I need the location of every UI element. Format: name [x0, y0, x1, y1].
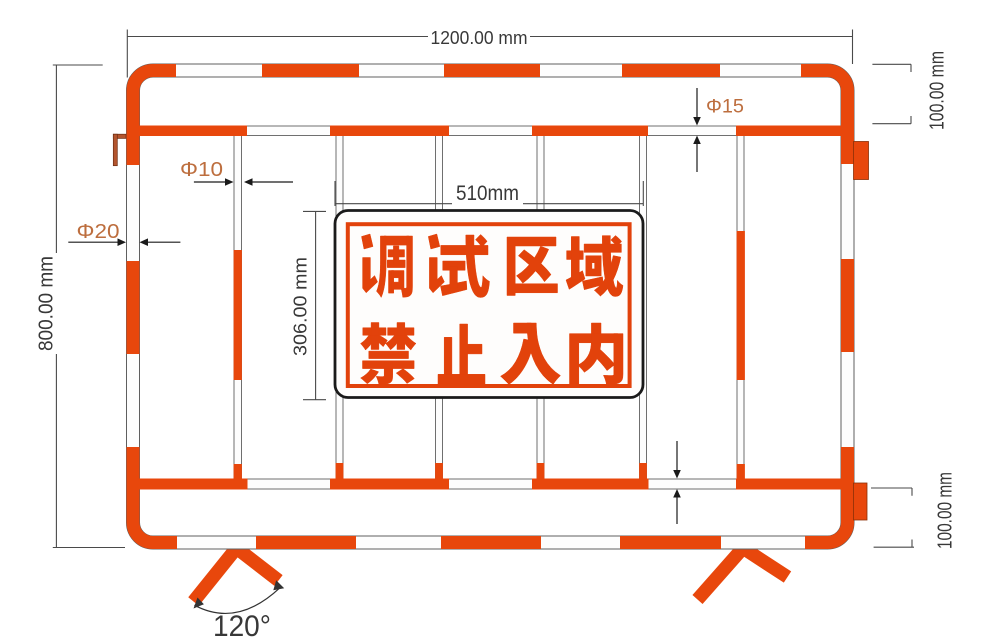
- svg-text:100.00 mm: 100.00 mm: [934, 472, 957, 549]
- svg-text:Φ20: Φ20: [77, 221, 120, 243]
- svg-text:Φ10: Φ10: [180, 159, 223, 181]
- svg-text:510mm: 510mm: [456, 181, 519, 205]
- svg-text:800.00 mm: 800.00 mm: [36, 256, 58, 351]
- svg-text:100.00 mm: 100.00 mm: [926, 51, 949, 130]
- svg-text:1200.00 mm: 1200.00 mm: [431, 27, 528, 48]
- svg-text:Φ15: Φ15: [706, 97, 744, 118]
- svg-text:306.00 mm: 306.00 mm: [291, 257, 311, 356]
- svg-text:120°: 120°: [213, 610, 271, 641]
